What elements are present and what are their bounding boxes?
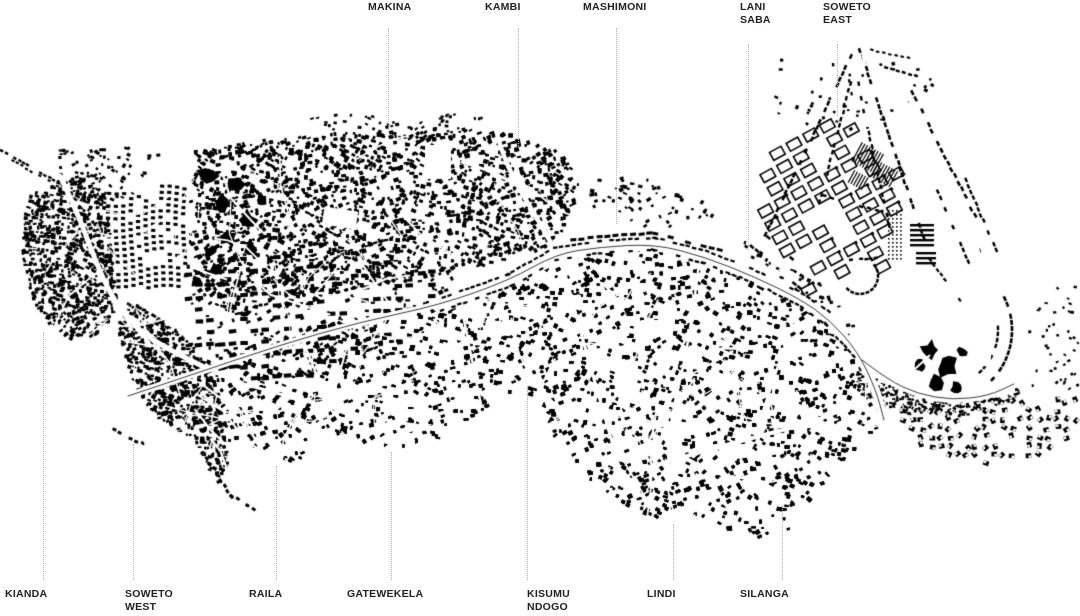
label-text: KIANDA: [5, 588, 47, 601]
leader-line-kianda: [43, 332, 44, 580]
leader-line-lani-saba: [748, 44, 749, 250]
settlement-map-figure: MAKINA KAMBI MASHIMONI LANI SABA SOWETO …: [0, 0, 1080, 616]
district-label-mashimoni: MASHIMONI: [583, 1, 647, 14]
leader-line-makina: [388, 28, 389, 132]
leader-line-raila: [276, 466, 277, 580]
figure-ground-map: [0, 0, 1080, 616]
district-label-gatewekela: GATEWEKELA: [347, 588, 423, 601]
leader-line-mashimoni: [616, 28, 617, 224]
label-text: SOWETO: [823, 1, 871, 14]
label-text: KISUMU: [527, 588, 570, 601]
label-text: RAILA: [249, 588, 282, 601]
label-text: SABA: [740, 14, 771, 27]
district-label-kianda: KIANDA: [5, 588, 47, 601]
district-label-soweto-east: SOWETO EAST: [823, 1, 871, 27]
label-text: WEST: [125, 601, 173, 614]
district-label-lindi: LINDI: [647, 588, 676, 601]
leader-line-kisumu-ndogo: [527, 386, 528, 580]
label-text: GATEWEKELA: [347, 588, 423, 601]
district-label-makina: MAKINA: [368, 1, 412, 14]
label-text: LINDI: [647, 588, 676, 601]
label-text: MAKINA: [368, 1, 412, 14]
label-text: NDOGO: [527, 601, 570, 614]
label-text: KAMBI: [485, 1, 521, 14]
district-label-silanga: SILANGA: [740, 588, 789, 601]
label-text: SILANGA: [740, 588, 789, 601]
leader-line-gatewekela: [391, 452, 392, 580]
leader-line-kambi: [518, 28, 519, 148]
leader-line-lindi: [673, 524, 674, 580]
district-label-soweto-west: SOWETO WEST: [125, 588, 173, 614]
leader-line-soweto-west: [133, 444, 134, 580]
leader-line-soweto-east: [837, 44, 838, 116]
label-text: EAST: [823, 14, 871, 27]
district-label-kambi: KAMBI: [485, 1, 521, 14]
label-text: SOWETO: [125, 588, 173, 601]
label-text: MASHIMONI: [583, 1, 647, 14]
district-label-raila: RAILA: [249, 588, 282, 601]
district-label-kisumu-ndogo: KISUMU NDOGO: [527, 588, 570, 614]
label-text: LANI: [740, 1, 771, 14]
district-label-lani-saba: LANI SABA: [740, 1, 771, 27]
leader-line-silanga: [782, 506, 783, 580]
